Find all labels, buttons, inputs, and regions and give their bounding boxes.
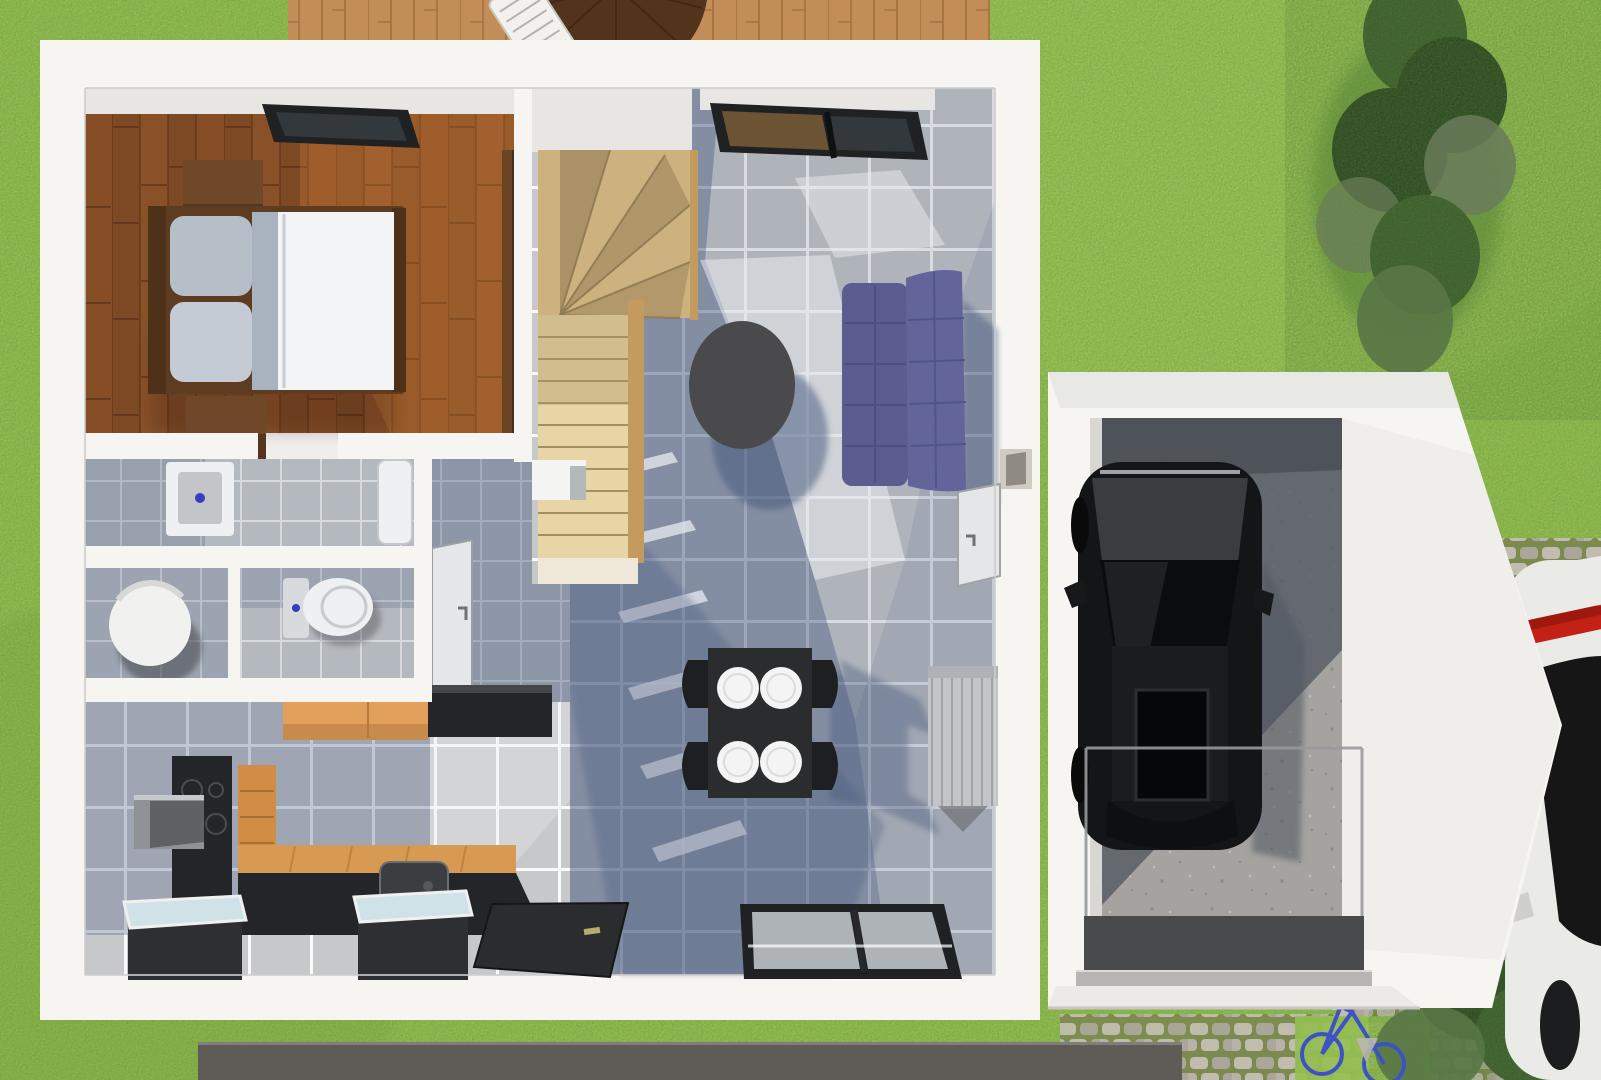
garage-access-door: [958, 484, 1000, 586]
floor-plan-render: [0, 0, 1601, 1080]
glass-top: [354, 891, 472, 922]
wall-boiler-wc: [228, 568, 240, 678]
paved-band: [198, 1042, 1182, 1080]
paved-band-edge: [198, 1042, 1182, 1045]
wall-wc-south: [85, 678, 430, 702]
entry-door: [474, 903, 628, 977]
hall-door: [432, 540, 472, 698]
wall-hall-west: [414, 455, 432, 702]
living-window-glass-left: [722, 111, 829, 150]
shower-tray: [378, 460, 412, 544]
drain: [195, 493, 205, 503]
room-bathroom: [85, 459, 414, 546]
room-boiler: [85, 568, 228, 684]
scene-canvas: [0, 0, 1601, 1080]
winder-steps: [560, 150, 690, 318]
hood: [1092, 478, 1248, 562]
gray-open-box: [134, 795, 204, 849]
living-window-glass-right: [830, 116, 915, 152]
sink-drain: [423, 881, 433, 891]
wall-bedroom-stairs: [514, 88, 532, 462]
wardrobe-highlight: [502, 150, 512, 456]
hood-edge: [428, 685, 552, 693]
stringer: [628, 300, 644, 563]
threshold-step: [1048, 986, 1420, 1008]
outer-stringer: [690, 150, 698, 320]
room-wc: [240, 568, 414, 678]
south-window-glass: [752, 912, 860, 969]
wall-bath-south: [85, 546, 414, 568]
wheel: [1071, 497, 1089, 553]
wheel: [1540, 980, 1580, 1070]
wall-niche-inner: [1006, 452, 1026, 486]
double-bed: [148, 206, 406, 394]
headboard: [148, 206, 166, 394]
flush-button: [292, 604, 300, 612]
pillow: [170, 302, 252, 382]
appliance-1: [124, 896, 246, 980]
garage-top-wall-lip: [1048, 372, 1460, 408]
sunroof: [1136, 690, 1208, 800]
cabinet-shade: [283, 724, 428, 740]
pillow-shade: [170, 216, 252, 296]
wall-bedroom-south-left: [85, 433, 258, 459]
door-sill: [1076, 970, 1372, 986]
room-bedroom: [85, 88, 540, 462]
appliance-2: [354, 891, 472, 980]
bottom-step: [538, 558, 638, 584]
stair-top-wall: [532, 88, 692, 152]
coffee-table: [689, 321, 795, 449]
garage-door-panel: [1084, 916, 1364, 972]
white-duvet: [278, 212, 394, 390]
footboard: [392, 208, 406, 392]
flight-upper-shade: [538, 315, 630, 405]
washbasin: [166, 462, 234, 536]
house: [40, 40, 1040, 1020]
sofa-shadow: [962, 300, 998, 505]
countertop: [238, 845, 516, 873]
under-stair-cabinet-side: [570, 466, 586, 500]
tree: [1357, 265, 1453, 375]
